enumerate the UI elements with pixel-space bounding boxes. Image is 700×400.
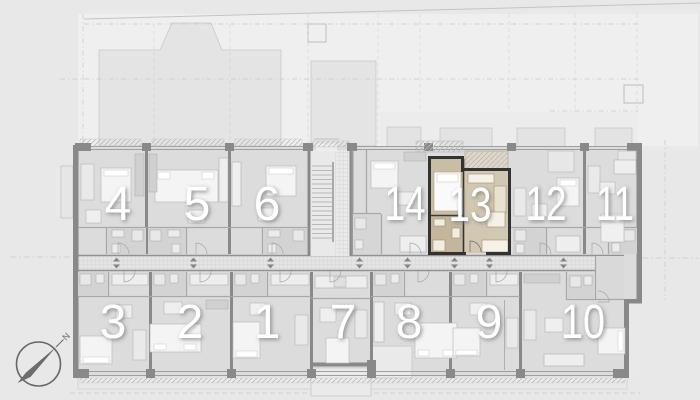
svg-text:2: 2: [177, 296, 204, 349]
svg-text:7: 7: [330, 296, 357, 349]
svg-text:9: 9: [476, 296, 503, 349]
svg-text:14: 14: [385, 178, 426, 231]
svg-text:12: 12: [526, 178, 567, 231]
svg-text:8: 8: [396, 296, 423, 349]
svg-text:3: 3: [100, 296, 127, 349]
svg-text:6: 6: [254, 178, 281, 231]
svg-text:5: 5: [184, 178, 211, 231]
svg-text:13: 13: [449, 179, 492, 232]
svg-text:10: 10: [561, 296, 605, 349]
svg-text:11: 11: [596, 178, 634, 231]
svg-text:1: 1: [254, 296, 281, 349]
svg-text:4: 4: [105, 178, 132, 231]
